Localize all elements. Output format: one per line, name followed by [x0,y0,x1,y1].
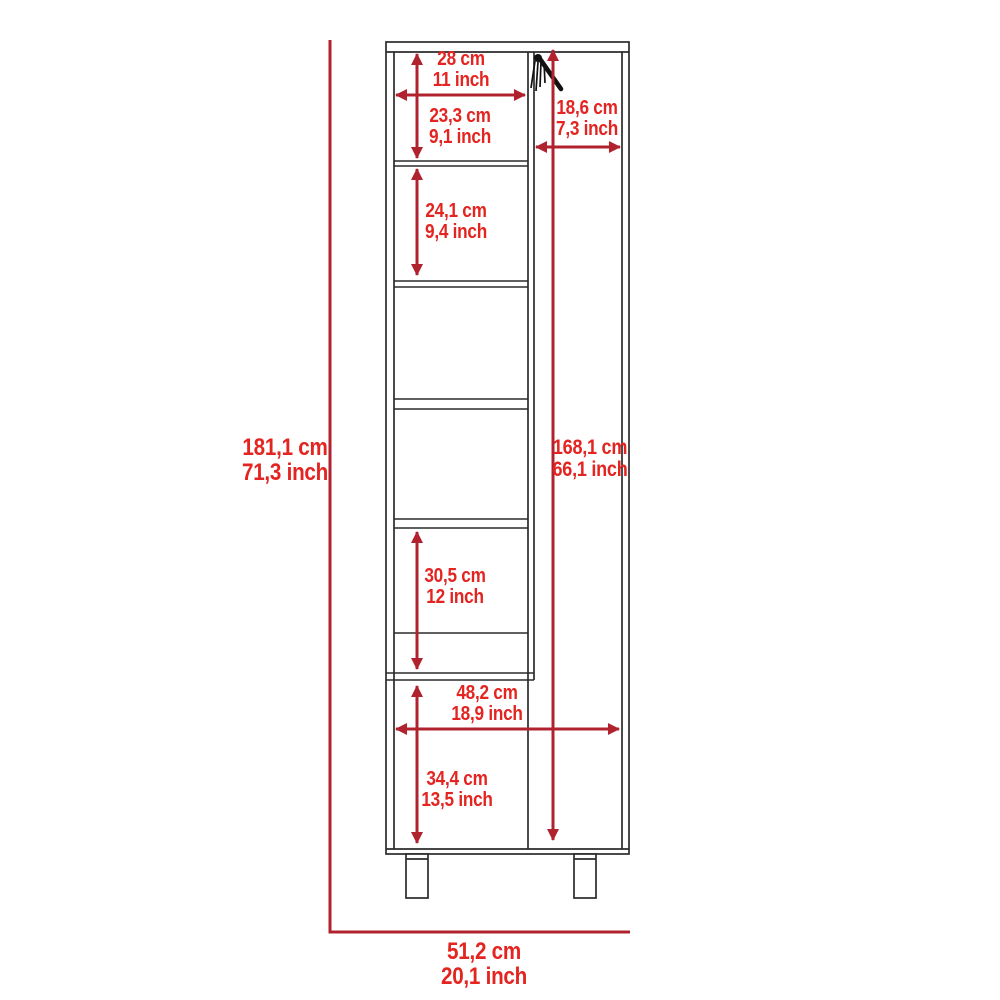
dim-inch: 71,3 inch [242,460,328,485]
dim-fifth-shelf-height-label: 30,5 cm 12 inch [424,566,485,608]
dim-lower-section-height-label: 34,4 cm 13,5 inch [421,769,492,811]
dim-inch: 13,5 inch [421,790,492,811]
dim-inch: 9,4 inch [425,222,487,243]
dim-inch: 9,1 inch [429,127,491,148]
dim-cm: 24,1 cm [425,201,487,222]
dim-cm: 28 cm [433,49,490,70]
dim-side-compartment-height-label: 168,1 cm 66,1 inch [553,437,628,481]
dim-cm: 18,6 cm [556,98,618,119]
dim-inch: 7,3 inch [556,119,618,140]
dim-cm: 34,4 cm [421,769,492,790]
dim-inch: 66,1 inch [553,459,628,481]
dim-top-shelf-height-label: 23,3 cm 9,1 inch [429,106,491,148]
dim-cm: 23,3 cm [429,106,491,127]
dim-cm: 48,2 cm [451,683,522,704]
dim-inch: 18,9 inch [451,704,522,725]
dim-overall-width-label: 51,2 cm 20,1 inch [441,939,527,989]
dim-top-shelf-width-label: 28 cm 11 inch [433,49,490,91]
dim-overall-height-label: 181,1 cm 71,3 inch [242,435,328,485]
dim-cm: 181,1 cm [242,435,328,460]
cabinet-dimension-diagram: 28 cm 11 inch 23,3 cm 9,1 inch 18,6 cm 7… [0,0,1000,1000]
dim-lower-section-width-label: 48,2 cm 18,9 inch [451,683,522,725]
dim-side-compartment-width-label: 18,6 cm 7,3 inch [556,98,618,140]
dim-second-shelf-height-label: 24,1 cm 9,4 inch [425,201,487,243]
dim-cm: 168,1 cm [553,437,628,459]
dim-inch: 12 inch [424,587,485,608]
cabinet-legs [406,854,596,898]
broom-hanger-icon [531,54,561,91]
dim-cm: 51,2 cm [441,939,527,964]
dim-inch: 20,1 inch [441,964,527,989]
dim-cm: 30,5 cm [424,566,485,587]
dim-inch: 11 inch [433,70,490,91]
cabinet-line-drawing [0,0,1000,1000]
